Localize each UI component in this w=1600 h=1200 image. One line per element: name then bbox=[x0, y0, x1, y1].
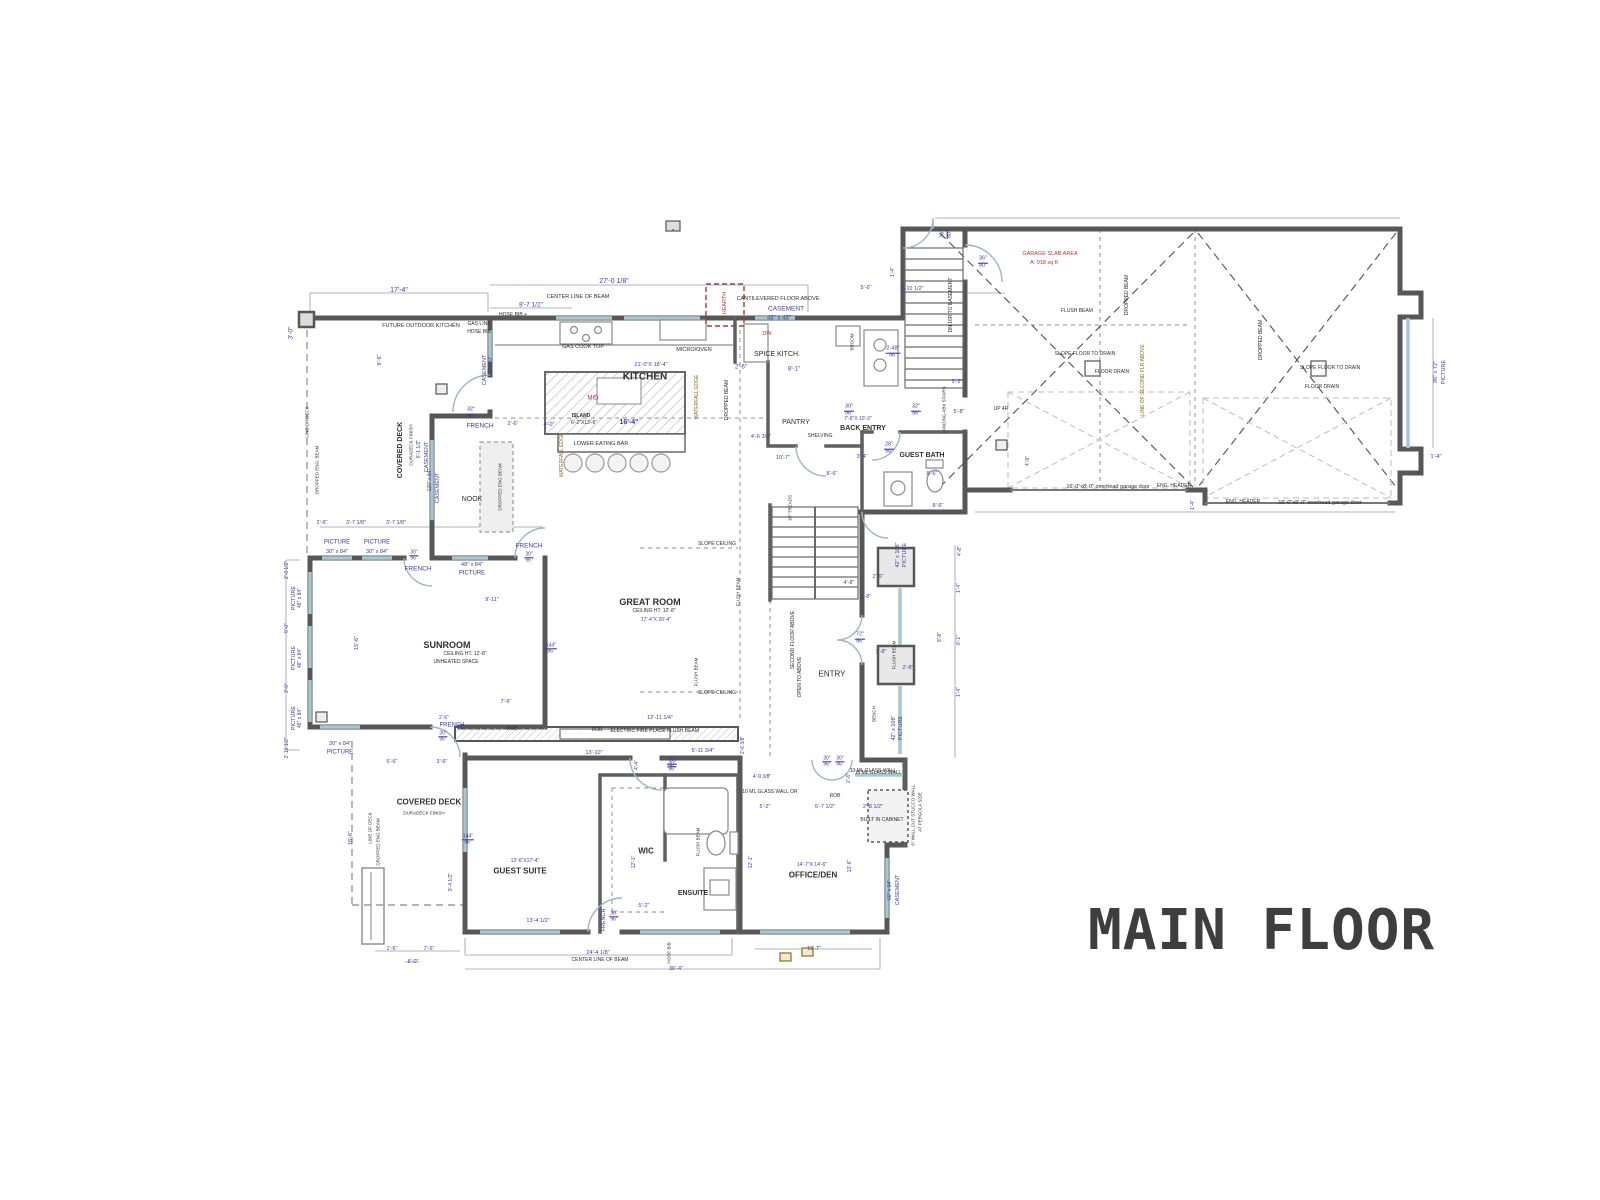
plan-label: FLOOR DRAIN bbox=[1305, 385, 1339, 391]
room-label-nook: NOOK bbox=[462, 496, 483, 504]
plan-label: 12'-7" bbox=[807, 946, 821, 952]
plan-label: 9'-11" bbox=[485, 597, 499, 603]
plan-label: 10'-7" bbox=[776, 455, 790, 461]
plan-label: 5'-2" bbox=[639, 903, 650, 909]
plan-label: GAS COOK TOP bbox=[562, 344, 604, 350]
plan-label: GAS LINE bbox=[467, 322, 490, 328]
plan-label: 2'-10 1/2" bbox=[900, 286, 923, 292]
plan-label: PICTURE bbox=[364, 540, 390, 547]
plan-label: 8'-1" bbox=[788, 367, 800, 374]
plan-label: BUILT IN CABINET bbox=[860, 818, 903, 824]
plan-label: PICTURE bbox=[291, 586, 297, 610]
plan-label: 48" x 84" bbox=[461, 562, 483, 568]
room-label-guest-suite: GUEST SUITE bbox=[493, 868, 546, 877]
plan-label: 13'-10" bbox=[585, 750, 602, 756]
sheet-title: MAIN FLOOR bbox=[1088, 898, 1448, 963]
plan-label: FLUSH BEAM bbox=[735, 578, 740, 607]
plan-label: 2'-6" bbox=[439, 716, 449, 722]
plan-label: 1'-8" bbox=[861, 595, 871, 601]
plan-label: 2'-6" bbox=[735, 365, 747, 372]
plan-label: A: 918 sq ft bbox=[1030, 260, 1058, 266]
plan-label: DURADECK FINISH bbox=[408, 424, 413, 465]
plan-label: 12'-11 1/4" bbox=[647, 715, 673, 721]
plan-label: ENG. HEADER bbox=[1157, 484, 1191, 490]
plan-label: DROPPED BEAM bbox=[1125, 275, 1131, 315]
plan-label: 5'-6" bbox=[861, 285, 872, 291]
plan-label: 10 ML GLASS WALL bbox=[855, 771, 902, 777]
plan-label: 1'-8" bbox=[876, 649, 887, 655]
plan-label: WATERFALL EDGE bbox=[695, 375, 701, 420]
plan-label: LINE OF DECK bbox=[367, 812, 372, 843]
plan-label: 42" x 108" bbox=[895, 542, 901, 567]
note-center-line-of-beam: CENTER LINE OF BEAM bbox=[547, 294, 610, 300]
plan-label: FLUSH BEAM bbox=[667, 729, 699, 735]
plan-label: DROPPED ENG. BEAM bbox=[314, 446, 319, 495]
plan-label: 42" x 108" bbox=[891, 715, 897, 740]
plan-label: 27'-0 1/8" bbox=[599, 278, 629, 286]
plan-label: 60" x 84" bbox=[888, 880, 894, 900]
plan-label: 8'-6" bbox=[827, 471, 838, 477]
plan-label: 48" x 84" bbox=[298, 588, 304, 608]
plan-label: 1'-4" bbox=[1431, 454, 1442, 460]
plan-label: AT PERGOLA SIDE bbox=[917, 792, 922, 832]
room-label-covered-deck-lower: COVERED DECK bbox=[397, 799, 461, 808]
plan-label: FLUSH BEAM bbox=[693, 658, 698, 687]
plan-label: SLOPE CEILING bbox=[698, 542, 736, 548]
plan-label: 7'-6" bbox=[424, 946, 435, 952]
plan-label: 8'-7 1/2" bbox=[519, 301, 543, 308]
plan-label: 3'-0" bbox=[285, 683, 291, 693]
plan-label: 3'-6" bbox=[437, 759, 448, 765]
plan-label: FRENCH bbox=[601, 909, 607, 932]
plan-label: 9'-4 1/2" bbox=[449, 873, 455, 891]
plan-label: 4'-9 3/8" bbox=[753, 775, 771, 781]
room-label-spice-kitchen: SPICE KITCH. bbox=[754, 351, 800, 359]
plan-label: FLUSH BEAM bbox=[1061, 309, 1093, 315]
plan-label: CANTILEVERED FLOOR ABOVE bbox=[737, 296, 820, 302]
plan-label: 2'-8 1/2" bbox=[863, 804, 883, 810]
plan-label: DROPPED BEAM bbox=[725, 380, 731, 420]
plan-label: 6'-2"X13'-6" bbox=[571, 421, 597, 427]
plan-labels-layer: 17'-4"3'-0"27'-0 1/8"CENTER LINE OF BEAM… bbox=[0, 0, 1600, 1200]
note-garage-door-2: 16'-0"x8'-0" overhead garage door bbox=[1278, 500, 1361, 506]
plan-label: 5'-7 1/2" bbox=[815, 804, 835, 810]
plan-label: PICTURE bbox=[459, 571, 485, 578]
plan-label: FLUSH BEAM bbox=[891, 641, 896, 670]
plan-label: UP 4R bbox=[994, 407, 1009, 413]
plan-label: 72"96" bbox=[855, 633, 865, 646]
plan-label: FRENCH bbox=[466, 422, 493, 429]
plan-label: HOSE BIB + bbox=[499, 313, 527, 319]
plan-label: CASEMENT bbox=[435, 473, 441, 504]
room-label-kitchen: KITCHEN bbox=[623, 371, 667, 382]
plan-label: 13'-6"X17'-4" bbox=[511, 859, 540, 865]
plan-label: 15'-6" bbox=[354, 636, 360, 650]
plan-label: 14'-7"X 14'-6" bbox=[797, 863, 827, 869]
plan-label: 36"80" bbox=[941, 229, 954, 239]
plan-label: 2'-6" bbox=[317, 520, 328, 526]
plan-label: 30"96" bbox=[524, 552, 533, 564]
plan-label: 13'-6" bbox=[848, 860, 854, 873]
plan-label: 3'-2" bbox=[952, 379, 963, 385]
room-label-guest-bath: GUEST BATH bbox=[900, 452, 945, 460]
plan-label: 30" x 84" bbox=[329, 741, 351, 747]
plan-label: PICTURE bbox=[291, 646, 297, 670]
plan-label: 7'-6"X 10'-3" bbox=[844, 417, 871, 423]
plan-label: 9'-6" bbox=[377, 355, 383, 366]
room-label-sunroom: SUNROOM bbox=[424, 640, 471, 650]
plan-label: DROPPED ENG BEAM bbox=[375, 818, 380, 865]
plan-label: CASEMENT bbox=[895, 875, 901, 906]
plan-label: 48" x 48" bbox=[767, 316, 791, 323]
plan-label: 1'-4" bbox=[957, 687, 963, 697]
plan-label: 32"96" bbox=[911, 405, 921, 418]
plan-label: 4'-8" bbox=[844, 580, 855, 586]
plan-label: 30" x 84" bbox=[326, 549, 348, 555]
room-label-covered-deck-upper: COVERED DECK bbox=[397, 422, 405, 478]
plan-label: 12'-1" bbox=[632, 856, 638, 869]
plan-label: 5'-2" bbox=[760, 804, 771, 810]
plan-label: CEILING HT. 12'-8" bbox=[632, 609, 675, 615]
plan-label: 17'-4"X 20'-4" bbox=[641, 618, 671, 624]
plan-label: 2'-10 1/2" bbox=[285, 737, 291, 758]
plan-label: CENTER LINE OF BEAM bbox=[572, 958, 629, 964]
note-garage-slab: GARAGE SLAB AREA bbox=[1022, 251, 1077, 257]
room-label-pantry: PANTRY bbox=[782, 419, 810, 427]
plan-label: 36'-4" bbox=[669, 966, 683, 972]
plan-label: 16'-4" bbox=[620, 419, 639, 427]
plan-label: UNHEATED SPACE bbox=[433, 660, 478, 666]
plan-label: LANDING ABV STAIRS bbox=[941, 386, 946, 433]
note-fireplace: ELECTRIC FIRE PLACE bbox=[610, 729, 665, 735]
plan-label: 4'-8" bbox=[958, 546, 964, 556]
plan-label: LINE OF DECK bbox=[304, 406, 309, 437]
note-stairs-basement: DN 16R TO BASEMENT bbox=[949, 278, 955, 333]
plan-label: MICRO/OVEN bbox=[676, 347, 711, 353]
note-future-outdoor-kitchen: FUTURE OUTDOOR KITCHEN bbox=[382, 323, 460, 329]
room-label-back-entry: BACK ENTRY bbox=[840, 425, 886, 433]
plan-label: LINE OF SECOND FLR ABOVE bbox=[1141, 344, 1147, 415]
plan-label: 72" x 60" bbox=[489, 356, 495, 376]
plan-label: BROOM bbox=[849, 333, 854, 350]
plan-label: 13'-4 1/2" bbox=[526, 918, 549, 924]
plan-label: 36"80" bbox=[978, 257, 988, 270]
plan-label: PICTURE bbox=[898, 716, 904, 740]
plan-label: 8'-6" bbox=[927, 471, 938, 477]
plan-label: 8'-1" bbox=[957, 635, 963, 645]
plan-label: 30"96" bbox=[667, 761, 676, 773]
room-label-wic: WIC bbox=[638, 848, 654, 857]
plan-label: FRENCH bbox=[515, 542, 542, 549]
plan-label: FLOOR DRAIN bbox=[1095, 370, 1129, 376]
plan-label: 3'-7 1/8" bbox=[346, 520, 366, 526]
plan-label: SLOPE CEILING bbox=[698, 691, 736, 697]
plan-label: 30"96" bbox=[822, 756, 831, 768]
plan-label: HOSE BIB bbox=[666, 942, 671, 963]
plan-label: 28"96" bbox=[884, 443, 894, 456]
plan-label: 30"96" bbox=[409, 550, 418, 562]
plan-label: 3'-0" bbox=[287, 327, 294, 340]
plan-label: 1'-4" bbox=[957, 583, 963, 593]
plan-label: 2-48"96" bbox=[886, 347, 901, 360]
plan-label: DURADECK FINISH bbox=[403, 810, 444, 815]
plan-label: 2'-8" bbox=[903, 665, 914, 671]
note-hearth: HEARTH bbox=[722, 292, 728, 315]
plan-label: 4'-9" bbox=[1026, 456, 1032, 466]
plan-label: 2'-6" bbox=[847, 773, 853, 783]
plan-label: 3'-7 1/8" bbox=[386, 520, 406, 526]
plan-label: 8'-8" bbox=[938, 632, 944, 642]
plan-label: ROB bbox=[507, 727, 518, 733]
plan-label: 1'-6" bbox=[387, 946, 398, 952]
room-label-ensuite: ENSUITE bbox=[678, 890, 708, 898]
plan-label: 4'-4" bbox=[635, 760, 641, 770]
plan-label: 6'-6" bbox=[387, 759, 398, 765]
plan-label: 2'-3 1/2" bbox=[285, 561, 291, 579]
plan-label: SLOPE FLOOR TO DRAIN bbox=[1300, 366, 1360, 372]
plan-label: 30"96" bbox=[438, 731, 447, 743]
plan-label: 12'-1" bbox=[749, 856, 755, 869]
plan-label: OPEN TO ABOVE bbox=[798, 657, 804, 698]
room-label-great-room: GREAT ROOM bbox=[619, 597, 680, 607]
plan-label: HOSE BIB bbox=[467, 330, 491, 336]
plan-label: DROPPED ENG BEAM bbox=[497, 463, 502, 510]
plan-label: 6" WALL CUT STUCCO WALL bbox=[910, 784, 915, 845]
floor-plan-sheet: 17'-4"3'-0"27'-0 1/8"CENTER LINE OF BEAM… bbox=[0, 0, 1600, 1200]
plan-label: 1'-4" bbox=[1191, 500, 1197, 510]
plan-label: FRENCH bbox=[440, 723, 465, 730]
plan-label: CEILING HT. 12'-8" bbox=[443, 652, 486, 658]
plan-label: SECOND FLOOR ABOVE bbox=[791, 611, 797, 669]
plan-label: CASEMENT bbox=[482, 355, 488, 386]
plan-label: 5'-0" bbox=[285, 623, 291, 633]
plan-label: SHELVING bbox=[808, 434, 833, 440]
plan-label: 120" x 84" bbox=[428, 469, 434, 492]
plan-label: PICTURE bbox=[1441, 360, 1447, 384]
plan-label: 5'-8" bbox=[954, 409, 965, 415]
plan-label: 21'-0"X 18'-4" bbox=[634, 362, 667, 368]
plan-label: 3'-4" bbox=[857, 454, 868, 460]
plan-label: DROPPED BEAM bbox=[1259, 320, 1265, 360]
plan-label: FLUSH BEAM bbox=[695, 828, 700, 857]
plan-label: ROB bbox=[830, 794, 841, 800]
plan-label: 2'-6" bbox=[873, 574, 884, 580]
plan-label: 2'-6 3/8" bbox=[741, 736, 747, 754]
plan-label: 30"96" bbox=[835, 756, 844, 768]
plan-label: PICTURE bbox=[324, 540, 350, 547]
plan-label: PICTURE bbox=[291, 706, 297, 730]
plan-label: 32"90" bbox=[466, 408, 476, 421]
note-garage-door-1: 16'-0"x8'-0" overhead garage door bbox=[1066, 484, 1149, 490]
plan-label: PICTURE bbox=[327, 750, 353, 757]
plan-label: 10" TREADS bbox=[787, 495, 792, 521]
plan-label: 5'-11 3/4" bbox=[692, 748, 715, 754]
plan-label: 2'-6" bbox=[508, 421, 519, 427]
plan-label: 4'-6 3/8" bbox=[751, 434, 771, 440]
plan-label: SLOPE FLOOR TO DRAIN bbox=[1055, 352, 1115, 358]
plan-label: 8'-6" bbox=[933, 503, 944, 509]
plan-label: 96" x 72" bbox=[1433, 361, 1439, 383]
plan-label: LOWER EATING BAR bbox=[574, 441, 629, 447]
plan-label: FRENCH bbox=[404, 565, 431, 572]
plan-label: 144"96" bbox=[462, 834, 474, 846]
room-label-office-den: OFFICE/DEN bbox=[789, 872, 837, 881]
plan-label: 8'-0" bbox=[408, 959, 419, 965]
plan-label: 10 ML GLASS WALL OR bbox=[742, 790, 797, 796]
plan-label: MID bbox=[588, 396, 599, 403]
plan-label: 6'-1 1/2" bbox=[417, 440, 423, 458]
plan-label: DW bbox=[762, 331, 771, 337]
plan-label: 48" x 84" bbox=[298, 648, 304, 668]
plan-label: 4'-0" bbox=[544, 422, 555, 428]
plan-label: 7'-6" bbox=[501, 699, 512, 705]
plan-label: BENCH bbox=[871, 706, 876, 722]
plan-label: CASEMENT bbox=[768, 305, 804, 312]
plan-label: 30" x 84" bbox=[366, 549, 388, 555]
plan-label: 16'-6" bbox=[348, 831, 354, 845]
room-label-entry: ENTRY bbox=[819, 671, 846, 680]
plan-label: WATERFALL EDGE bbox=[560, 433, 566, 478]
plan-label: ENG. HEADER bbox=[1226, 500, 1260, 506]
plan-label: 144"96" bbox=[545, 643, 557, 655]
plan-label: 48" x 84" bbox=[298, 708, 304, 728]
plan-label: PICTURE bbox=[902, 543, 908, 567]
plan-label: 1'-4" bbox=[891, 267, 897, 277]
plan-label: 24'-4 1/8" bbox=[586, 950, 609, 956]
plan-label: ISLAND bbox=[572, 414, 591, 420]
plan-label: 17'-4" bbox=[390, 287, 408, 295]
plan-label: 30"96" bbox=[609, 911, 618, 923]
plan-label: ROB bbox=[592, 728, 603, 734]
